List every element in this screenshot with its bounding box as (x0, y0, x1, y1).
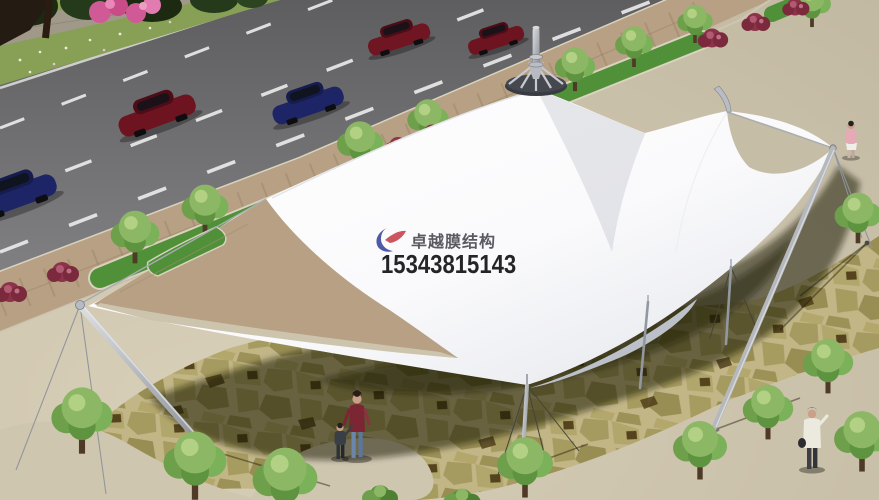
membrane-structure-rendering (0, 0, 879, 500)
rendering-canvas: 卓越膜结构 15343815143 (0, 0, 879, 500)
ground-anchor (865, 241, 870, 246)
